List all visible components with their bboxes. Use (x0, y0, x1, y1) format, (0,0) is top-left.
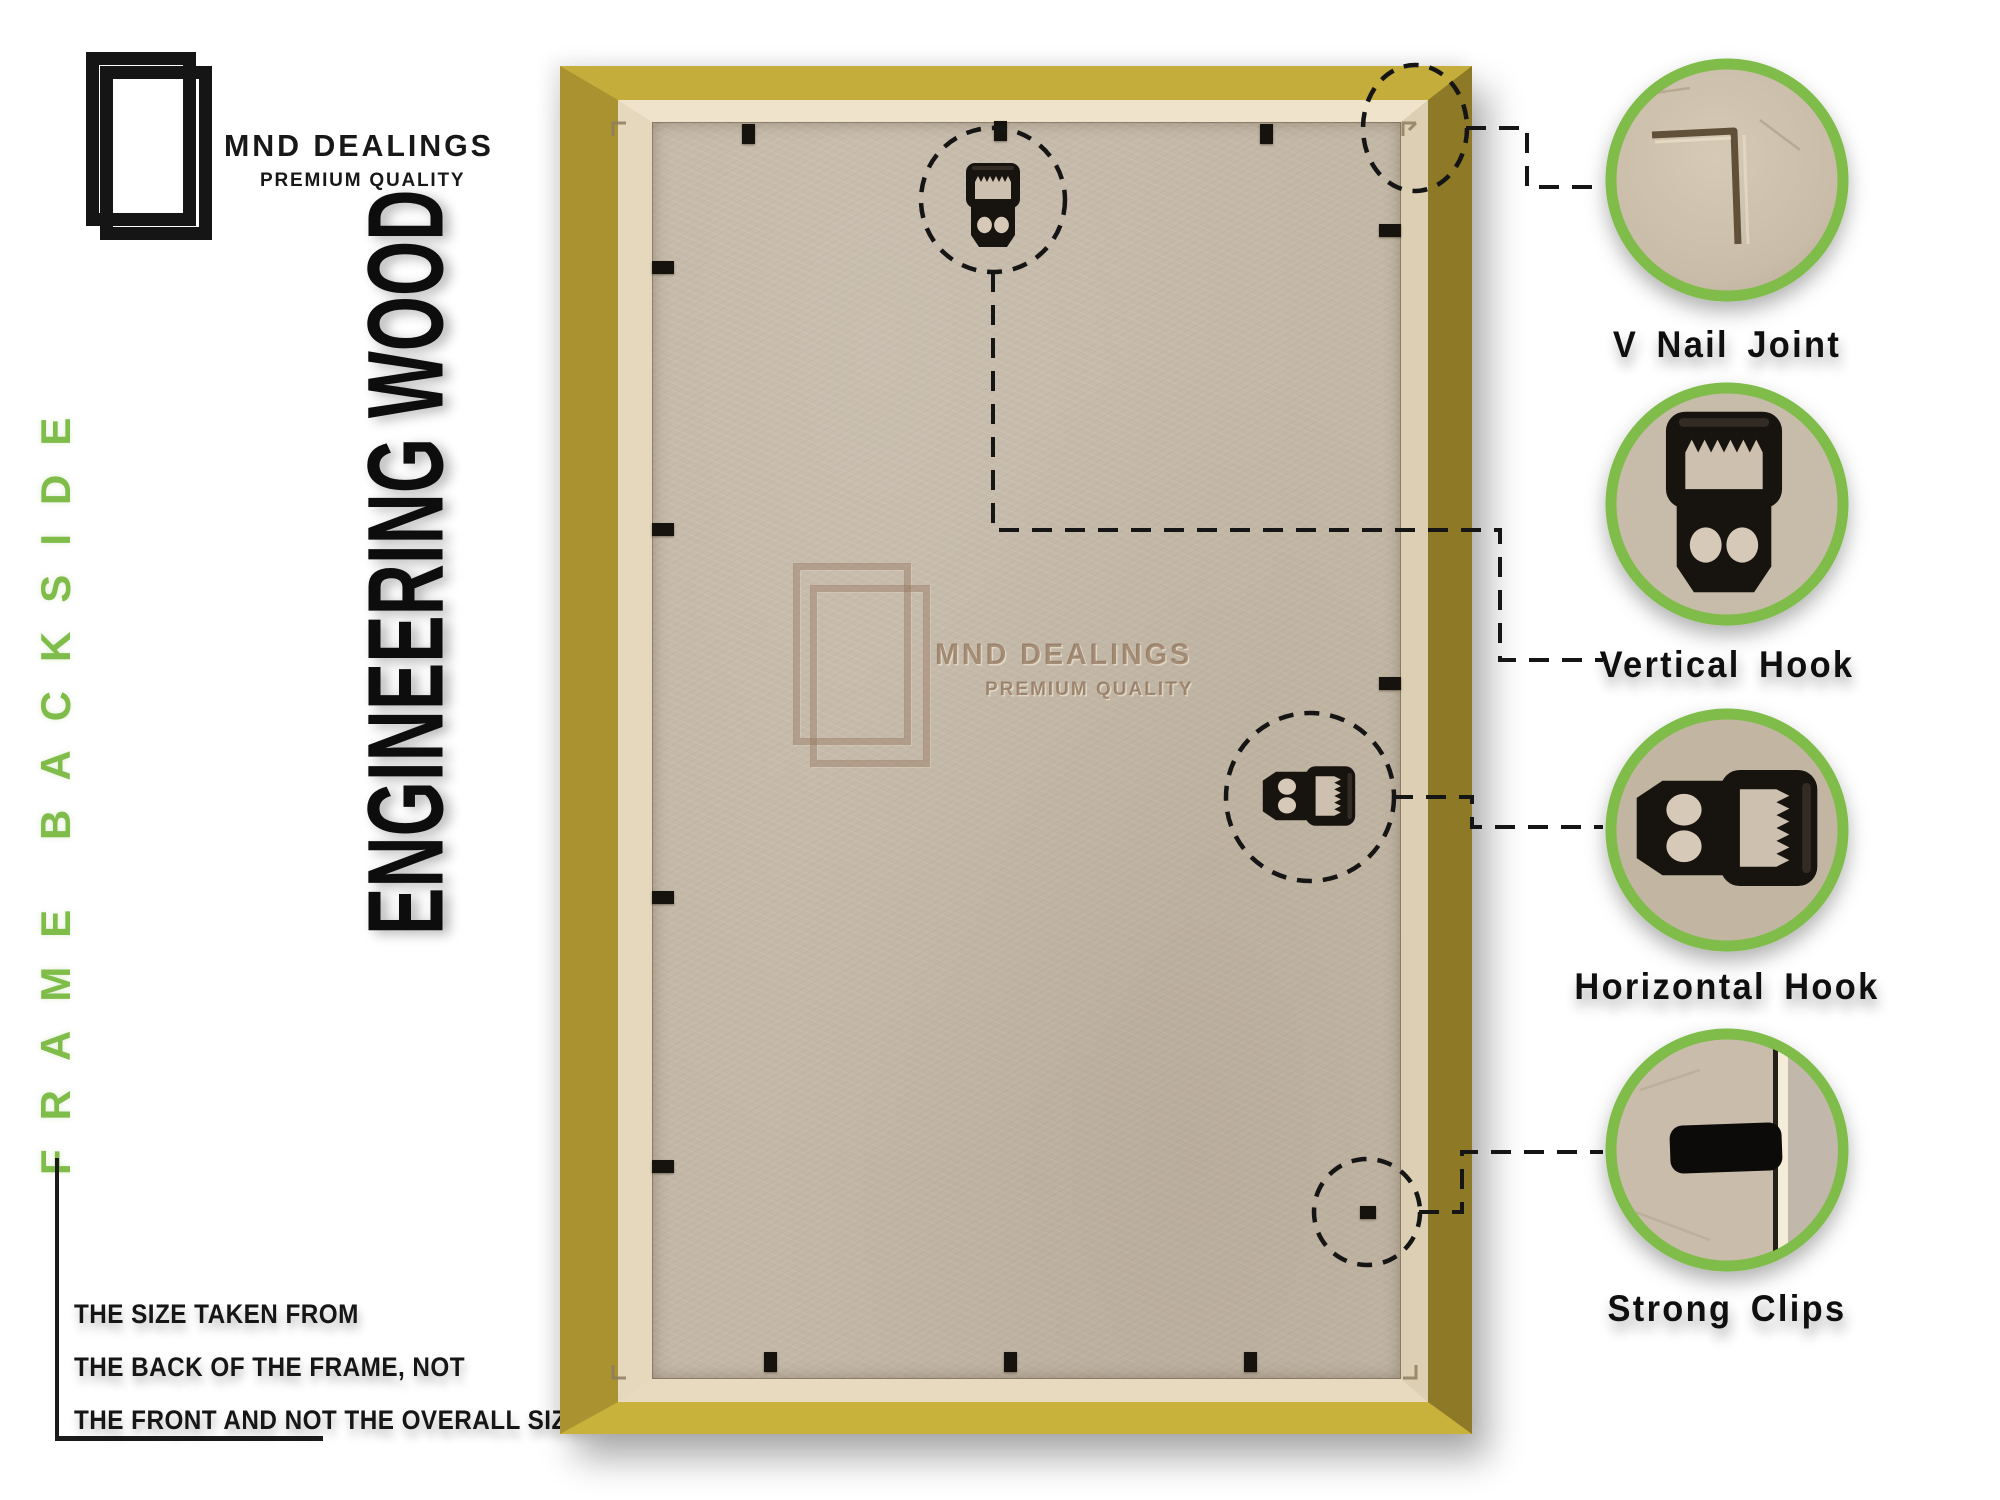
callout-circle-vertical-hook (1611, 388, 1843, 620)
frame-backside-label: FRAME BACKSIDE (32, 389, 80, 1175)
board-clip (652, 1160, 674, 1173)
brand-name: MND DEALINGS (224, 128, 494, 164)
gold-frame (560, 66, 1472, 1434)
product-infographic: MND DEALINGS PREMIUM QUALITY FRAME BACKS… (0, 0, 2000, 1500)
watermark-tagline: PREMIUM QUALITY (985, 679, 1193, 701)
board-clip (652, 891, 674, 904)
frame-inner-lip (618, 100, 1428, 1402)
board-clip (1260, 124, 1273, 144)
size-note-line: THE SIZE TAKEN FROM (74, 1288, 591, 1341)
vertical-hook-photo-icon (1666, 412, 1782, 593)
size-note-line: THE BACK OF THE FRAME, NOT (74, 1341, 591, 1394)
board-clip (652, 261, 674, 274)
callout-label-vertical-hook: Vertical Hook (1541, 644, 1913, 686)
board-clip (994, 121, 1007, 141)
board-clip (1004, 1352, 1017, 1372)
logo-frame-rect-front (100, 66, 212, 240)
connector-v-nail (1466, 128, 1603, 187)
horizontal-hook-photo-icon (1637, 770, 1818, 886)
strong-clips-photo (1630, 1030, 1858, 1270)
board-clip (1379, 224, 1401, 237)
callout-circle-strong-clips (1611, 1034, 1843, 1266)
engineering-wood-headline: ENGINEERING WOOD (344, 189, 468, 935)
mdf-backboard (652, 122, 1401, 1379)
size-note: THE SIZE TAKEN FROM THE BACK OF THE FRAM… (74, 1288, 591, 1447)
callout-circle-horizontal-hook (1611, 714, 1843, 946)
board-clip (764, 1352, 777, 1372)
callout-circle-v-nail-joint (1611, 64, 1843, 296)
size-note-line: THE FRONT AND NOT THE OVERALL SIZE. (74, 1394, 591, 1447)
board-clip (1244, 1352, 1257, 1372)
board-clip (1379, 677, 1401, 690)
callout-label-horizontal-hook: Horizontal Hook (1541, 966, 1913, 1008)
board-clip-strong (1360, 1206, 1376, 1219)
board-clip (742, 124, 755, 144)
v-nail-joint-photo (1600, 88, 1800, 300)
callout-label-strong-clips: Strong Clips (1541, 1288, 1913, 1330)
note-bracket-vertical (55, 1158, 59, 1439)
board-clip (652, 523, 674, 536)
watermark-name: MND DEALINGS (935, 638, 1192, 672)
brand-logo-icon (86, 50, 236, 250)
callout-label-v-nail-joint: V Nail Joint (1541, 324, 1913, 366)
